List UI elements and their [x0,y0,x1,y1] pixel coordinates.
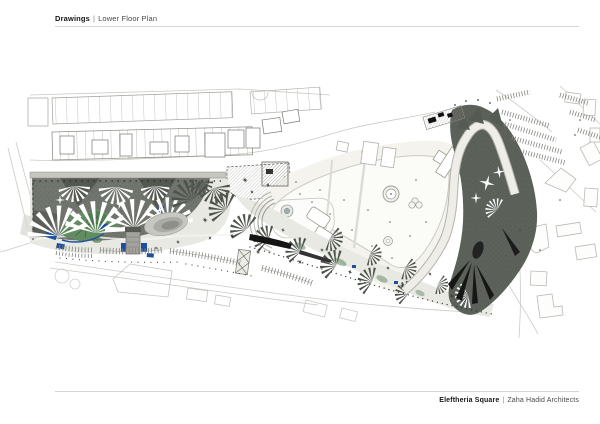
plan-area [0,0,600,424]
old-town-blocks [28,87,321,160]
project-name: Eleftheria Square [439,397,499,404]
sheet-footer: Eleftheria Square|Zaha Hadid Architects [439,397,579,404]
firm-name: Zaha Hadid Architects [507,397,579,404]
footer-rule [55,391,579,392]
site-plan-drawing [0,0,600,424]
drawing-sheet: Drawings|Lower Floor Plan [0,0,600,424]
